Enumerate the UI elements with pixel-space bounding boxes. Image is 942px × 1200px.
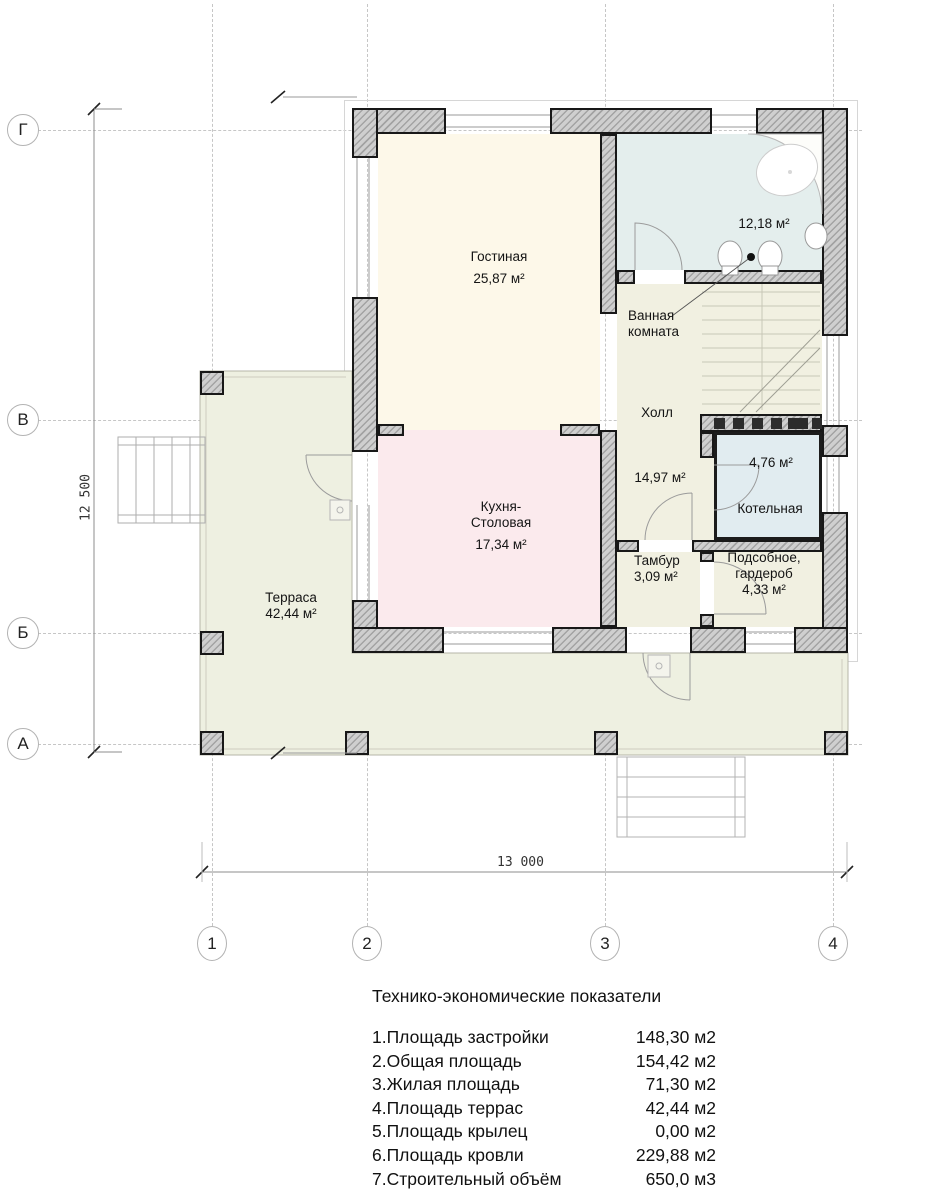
dimension-bottom: 13 000	[497, 855, 544, 870]
room-area: 42,44 м²	[265, 606, 316, 621]
exterior-stairs-left	[118, 437, 205, 523]
exterior-stairs-bottom	[617, 757, 745, 837]
axis-label: А	[17, 734, 28, 754]
room-area: 3,09 м²	[634, 569, 678, 584]
room-name: Терраса	[265, 590, 317, 605]
room-area: 14,97 м²	[634, 470, 685, 485]
radiator-block	[771, 418, 782, 429]
room-name: комната	[628, 324, 679, 339]
teo-title: Технико-экономические показатели	[372, 986, 716, 1007]
room-area: 4,76 м²	[749, 455, 793, 470]
axis-label: 4	[828, 934, 837, 954]
label-bathroom-area: 12,18 м²	[738, 216, 789, 232]
room-area: 17,34 м²	[471, 537, 531, 553]
dimension-lines	[88, 91, 853, 882]
axis-label: Г	[18, 120, 27, 140]
door-swing	[306, 223, 766, 700]
teo-row-value: 650,0 м3	[611, 1168, 716, 1192]
room-area: 4,33 м²	[742, 582, 786, 597]
label-boiler-name: Котельная	[737, 501, 802, 517]
teo-row: 1.Площадь застройки 148,30 м2	[372, 1026, 716, 1050]
radiator-block	[788, 418, 808, 429]
axis-label: В	[17, 410, 28, 430]
teo-row-value: 154,42 м2	[611, 1050, 716, 1074]
room-area: 12,18 м²	[738, 216, 789, 231]
teo-row-value: 148,30 м2	[611, 1026, 716, 1050]
axis-marker-row-v: В	[7, 404, 39, 436]
teo-row-label: 7.Строительный объём	[372, 1168, 562, 1192]
room-name: гардероб	[735, 566, 792, 581]
label-hall-name: Холл	[641, 405, 673, 421]
floor-plan-page: { "axes": { "rows": ["Г", "В", "Б", "А"]…	[0, 0, 942, 1200]
radiator-block	[812, 418, 822, 429]
teo-row: 2.Общая площадь 154,42 м2	[372, 1050, 716, 1074]
sink	[805, 223, 827, 249]
axis-marker-col-1: 1	[197, 926, 227, 961]
teo-row: 5.Площадь крылец 0,00 м2	[372, 1120, 716, 1144]
teo-row-label: 6.Площадь кровли	[372, 1144, 524, 1168]
teo-row: 7.Строительный объём 650,0 м3	[372, 1168, 716, 1192]
axis-marker-row-g: Г	[7, 114, 39, 146]
room-name: Котельная	[737, 501, 802, 516]
room-name: Ванная	[628, 308, 674, 323]
staircase	[702, 284, 820, 412]
teo-row-value: 0,00 м2	[611, 1120, 716, 1144]
teo-row-label: 3.Жилая площадь	[372, 1073, 520, 1097]
label-hall-area: 14,97 м²	[634, 470, 685, 486]
teo-row-label: 4.Площадь террас	[372, 1097, 523, 1121]
room-name: Холл	[641, 405, 673, 420]
room-name: Гостиная	[471, 249, 528, 264]
bathtub	[748, 134, 824, 214]
teo-row: 6.Площадь кровли 229,88 м2	[372, 1144, 716, 1168]
radiator-block	[752, 418, 763, 429]
teo-row-label: 1.Площадь застройки	[372, 1026, 549, 1050]
room-name: Кухня-	[481, 499, 522, 514]
teo-row-value: 71,30 м2	[611, 1073, 716, 1097]
axis-label: 2	[362, 934, 371, 954]
teo-row-value: 229,88 м2	[611, 1144, 716, 1168]
teo-row-label: 5.Площадь крылец	[372, 1120, 528, 1144]
label-utility: Подсобное, гардероб 4,33 м²	[727, 550, 800, 598]
label-kitchen: Кухня- Столовая 17,34 м²	[471, 499, 531, 553]
label-living: Гостиная 25,87 м²	[471, 249, 528, 287]
teo-row-value: 42,44 м2	[611, 1097, 716, 1121]
axis-marker-col-4: 4	[818, 926, 848, 961]
teo-row: 4.Площадь террас 42,44 м2	[372, 1097, 716, 1121]
room-name: Подсобное,	[727, 550, 800, 565]
axis-label: 3	[600, 934, 609, 954]
teo-table: Технико-экономические показатели 1.Площа…	[372, 986, 716, 1191]
room-name: Столовая	[471, 515, 531, 530]
dimension-left: 12 500	[79, 470, 94, 526]
room-name: Тамбур	[634, 553, 680, 568]
teo-row: 3.Жилая площадь 71,30 м2	[372, 1073, 716, 1097]
axis-marker-row-a: А	[7, 728, 39, 760]
label-boiler-area: 4,76 м²	[749, 455, 793, 471]
label-leader	[672, 253, 755, 316]
label-terrace: Терраса 42,44 м²	[265, 590, 317, 622]
axis-marker-row-b: Б	[7, 617, 39, 649]
label-tambur: Тамбур 3,09 м²	[634, 553, 680, 585]
axis-marker-col-3: 3	[590, 926, 620, 961]
radiator-block	[714, 418, 725, 429]
axis-label: 1	[207, 934, 216, 954]
radiator-block	[733, 418, 744, 429]
axis-marker-col-2: 2	[352, 926, 382, 961]
label-bathroom-name: Ванная комната	[628, 308, 679, 340]
axis-label: Б	[17, 623, 28, 643]
teo-row-label: 2.Общая площадь	[372, 1050, 522, 1074]
room-area: 25,87 м²	[471, 271, 528, 287]
